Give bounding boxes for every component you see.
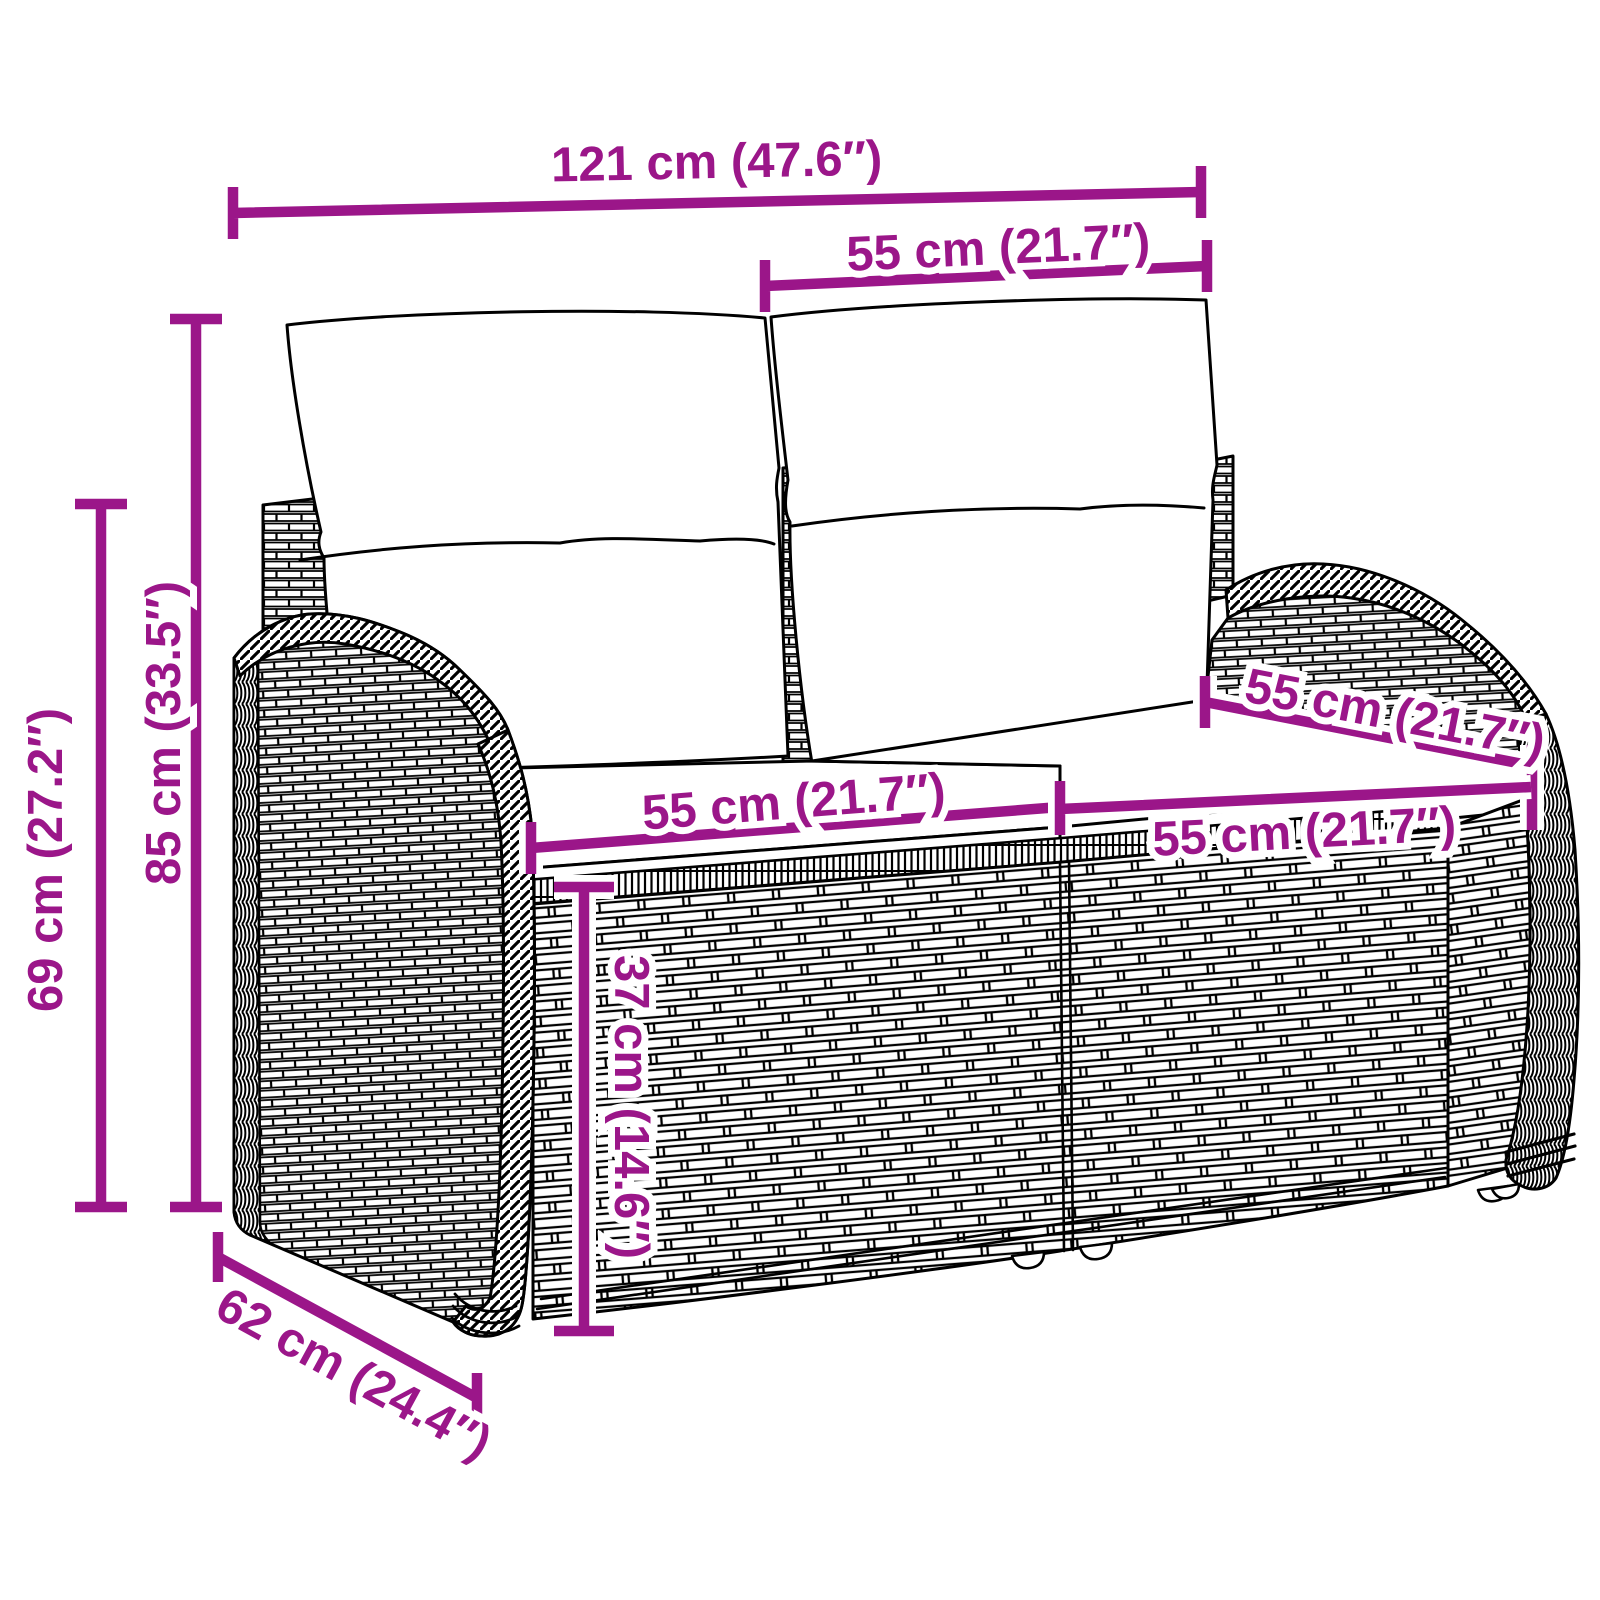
svg-text:69 cm (27.2″): 69 cm (27.2″) xyxy=(19,708,73,1012)
svg-text:121 cm (47.6″): 121 cm (47.6″) xyxy=(550,132,882,193)
svg-text:85 cm (33.5″): 85 cm (33.5″) xyxy=(137,581,191,885)
svg-text:37 cm (14.6″): 37 cm (14.6″) xyxy=(604,955,658,1259)
